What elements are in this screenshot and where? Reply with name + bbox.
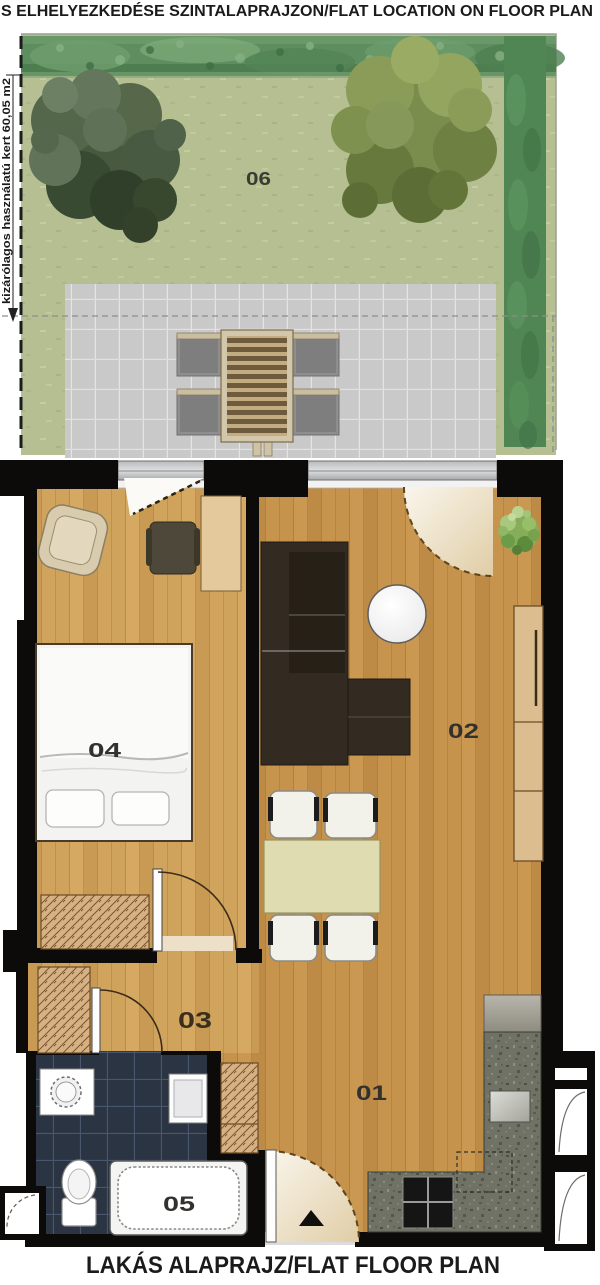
svg-text:LAKÁS ALAPRAJZ/FLAT FLOOR PLAN: LAKÁS ALAPRAJZ/FLAT FLOOR PLAN [86, 1251, 500, 1279]
svg-text:kizárólagos használatú kert 60: kizárólagos használatú kert 60,05 m2 [1, 78, 13, 304]
svg-text:06: 06 [246, 169, 271, 189]
svg-text:01: 01 [356, 1082, 387, 1105]
svg-text:04: 04 [88, 740, 122, 762]
svg-text:03: 03 [178, 1007, 212, 1033]
svg-text:02: 02 [448, 720, 479, 743]
svg-text:05: 05 [163, 1193, 195, 1216]
svg-text:S ELHELYEZKEDÉSE SZINTALAPRAJZ: S ELHELYEZKEDÉSE SZINTALAPRAJZON/FLAT LO… [1, 1, 593, 20]
